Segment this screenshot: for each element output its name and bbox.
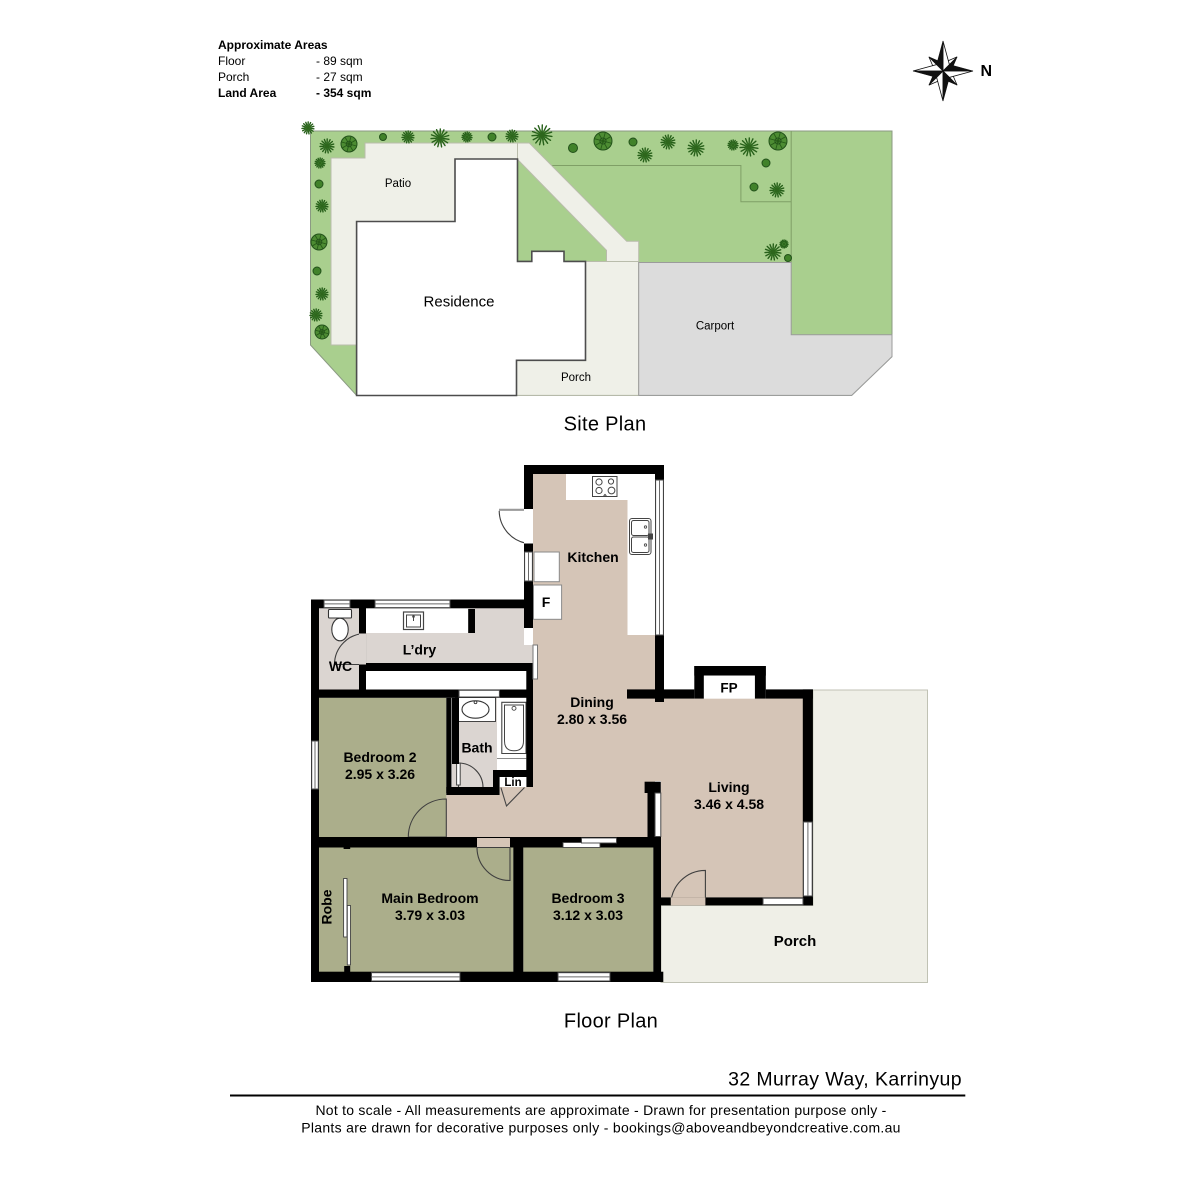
svg-text:2.95 x 3.26: 2.95 x 3.26 (345, 766, 415, 782)
svg-text:Patio: Patio (385, 178, 411, 190)
svg-text:F: F (542, 594, 551, 610)
svg-text:L’dry: L’dry (403, 642, 437, 658)
svg-text:Site Plan: Site Plan (564, 414, 647, 436)
svg-text:Carport: Carport (696, 321, 735, 333)
svg-text:Robe: Robe (319, 889, 335, 924)
svg-text:Bedroom 2: Bedroom 2 (343, 749, 416, 765)
svg-text:Land Area: Land Area (218, 86, 277, 100)
svg-text:Bedroom 3: Bedroom 3 (551, 890, 624, 906)
svg-text:Lin: Lin (504, 777, 521, 789)
svg-text:Porch: Porch (561, 372, 591, 384)
svg-text:FP: FP (720, 681, 737, 696)
svg-text:Porch: Porch (774, 933, 817, 950)
svg-text:Residence: Residence (424, 294, 495, 311)
svg-text:32 Murray Way, Karrinyup: 32 Murray Way, Karrinyup (728, 1069, 962, 1091)
svg-text:- 354 sqm: - 354 sqm (316, 86, 371, 100)
svg-text:Not to scale - All measurement: Not to scale - All measurements are appr… (315, 1102, 886, 1118)
svg-text:Porch: Porch (218, 70, 249, 84)
svg-text:N: N (981, 63, 993, 80)
svg-text:3.12 x 3.03: 3.12 x 3.03 (553, 907, 623, 923)
svg-text:WC: WC (329, 658, 352, 674)
svg-text:Floor: Floor (218, 54, 245, 68)
svg-text:3.79 x 3.03: 3.79 x 3.03 (395, 907, 465, 923)
svg-text:Dining: Dining (570, 694, 614, 710)
svg-text:- 27 sqm: - 27 sqm (316, 70, 363, 84)
svg-text:Kitchen: Kitchen (567, 549, 618, 565)
svg-text:Living: Living (708, 779, 749, 795)
svg-text:Main Bedroom: Main Bedroom (381, 890, 478, 906)
svg-text:Plants are drawn for decorativ: Plants are drawn for decorative purposes… (301, 1120, 901, 1136)
svg-text:2.80 x 3.56: 2.80 x 3.56 (557, 711, 627, 727)
svg-text:Floor Plan: Floor Plan (564, 1011, 658, 1033)
svg-text:Bath: Bath (461, 740, 492, 756)
svg-text:- 89 sqm: - 89 sqm (316, 54, 363, 68)
svg-text:3.46 x 4.58: 3.46 x 4.58 (694, 796, 764, 812)
svg-text:Approximate Areas: Approximate Areas (218, 38, 328, 52)
